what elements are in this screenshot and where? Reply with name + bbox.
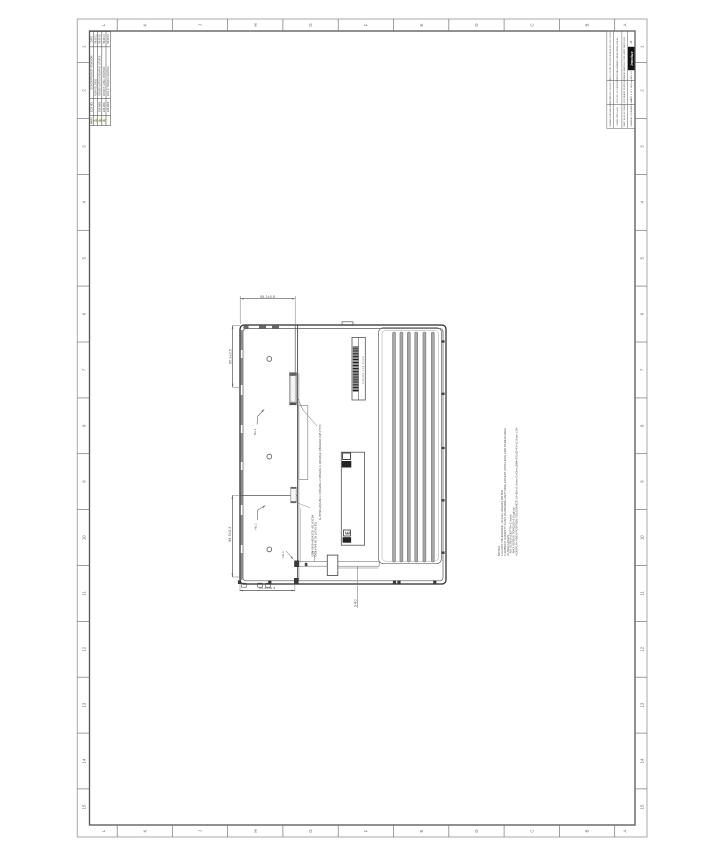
svg-text:G-35599-#(QUAD or DB##AG or DB: G-35599-#(QUAD or DB##AG or DB##A# or QD…	[318, 424, 322, 520]
svg-text:K: K	[142, 829, 147, 832]
svg-text:J: J	[198, 830, 203, 832]
svg-text:REV 3.2: REV 3.2	[631, 70, 633, 79]
svg-text:10: 10	[639, 535, 644, 540]
svg-text:G104X1-L01 3C2A: G104X1-L01 3C2A	[361, 356, 365, 384]
svg-text:F: F	[364, 829, 369, 832]
svg-text:DOCUMENT VERSION 3.2: DOCUMENT VERSION 3.2	[624, 76, 626, 102]
svg-text:K: K	[142, 23, 147, 26]
svg-text:'09.09.14: '09.09.14	[103, 34, 106, 44]
svg-text:ADD IF TORQUE REMARK: ADD IF TORQUE REMARK	[107, 66, 110, 96]
svg-text:88.5±0.5: 88.5±0.5	[228, 526, 232, 541]
svg-text:55.1±0.5: 55.1±0.5	[260, 295, 275, 299]
svg-text:G: G	[308, 829, 313, 833]
svg-text:CHIMEI INNOLUX CORP. APPD T.W: CHIMEI INNOLUX CORP. APPD T.WU S.LIN	[623, 37, 626, 79]
svg-text:85.9±0.5: 85.9±0.5	[228, 349, 232, 364]
svg-text:14: 14	[639, 758, 644, 763]
svg-text:D: D	[474, 829, 479, 832]
svg-text:E09-0885: E09-0885	[99, 101, 102, 112]
svg-text:DATE: DATE	[91, 36, 94, 43]
svg-text:13: 13	[639, 702, 644, 707]
svg-text:'09.09.02: '09.09.02	[99, 34, 102, 44]
svg-text:G: G	[308, 23, 313, 27]
svg-text:15: 15	[82, 804, 87, 809]
svg-text:SHEET 1 OF 1 UNIT mm: SHEET 1 OF 1 UNIT mm	[631, 79, 633, 103]
svg-text:'09.09.25: '09.09.25	[107, 34, 110, 44]
svg-text:10.4 COLOR TFT/LCD MODULE DOC: 10.4 COLOR TFT/LCD MODULE DOC NO. C104X1	[610, 30, 612, 79]
svg-text:12: 12	[82, 646, 87, 651]
svg-text:No.1: No.1	[254, 523, 258, 530]
svg-text:B: B	[585, 829, 590, 832]
svg-text:DATE '09.09.14 SCALE --: DATE '09.09.14 SCALE --	[623, 102, 626, 126]
svg-text:E09-0923: E09-0923	[107, 101, 110, 112]
svg-text:ECN NO.: ECN NO.	[91, 101, 94, 112]
svg-text:13: 13	[82, 702, 87, 707]
svg-text:F: F	[364, 23, 369, 26]
svg-text:DESCRIPTION OF REVISION: DESCRIPTION OF REVISION	[91, 55, 94, 89]
svg-text:J.CHEN T.WU S.LIN: J.CHEN T.WU S.LIN	[617, 107, 619, 126]
svg-text:REVISE NOTES (REMARK) UPDATE: REVISE NOTES (REMARK) UPDATE	[99, 55, 102, 96]
svg-text:E: E	[419, 829, 424, 832]
svg-text:14: 14	[82, 758, 87, 763]
svg-text:NEW RELEASE: NEW RELEASE	[94, 78, 97, 96]
svg-text:DRAWN CHECKED APPD: DRAWN CHECKED APPD	[609, 101, 612, 126]
svg-text:MODIFY LABEL POSITION: MODIFY LABEL POSITION	[103, 66, 106, 96]
svg-text:'09.08.21: '09.08.21	[94, 34, 97, 44]
svg-text:OUTLINE DRAWING (REAR VIEW) S: OUTLINE DRAWING (REAR VIEW) SIZE A4	[616, 37, 619, 79]
svg-text:E: E	[419, 23, 424, 26]
svg-text:H: H	[253, 829, 258, 832]
svg-text:12: 12	[639, 646, 644, 651]
svg-text:DC.L#T#9-B1 (B.L#T#9-B1): DC.L#T#9-B1 (B.L#T#9-B1)	[314, 522, 318, 557]
svg-text:3.80: 3.80	[353, 599, 357, 607]
svg-text:E09-0901: E09-0901	[103, 101, 106, 112]
svg-text:Innolux: Innolux	[629, 51, 634, 66]
svg-text:B: B	[585, 23, 590, 26]
svg-text:D: D	[474, 23, 479, 26]
svg-text:C: C	[529, 23, 534, 26]
svg-text:No.1: No.1	[281, 551, 285, 558]
svg-text:A: A	[623, 23, 628, 26]
svg-text:J: J	[198, 24, 203, 26]
svg-text:11: 11	[82, 591, 87, 596]
svg-text:A: A	[623, 829, 628, 832]
svg-text:11: 11	[639, 591, 644, 596]
svg-text:C: C	[529, 829, 534, 832]
svg-text:No.1: No.1	[253, 428, 257, 435]
svg-text:MODEL NO. G104X1-L01: MODEL NO. G104X1-L01	[610, 78, 612, 103]
svg-text:DOC.NO. 35-C1040-DWG: DOC.NO. 35-C1040-DWG	[617, 78, 619, 103]
svg-text:MARK: MARK	[91, 117, 94, 125]
svg-text:H: H	[253, 23, 258, 26]
svg-text:10: 10	[82, 535, 87, 540]
svg-text:4.DISPLAY AREA POSITION TOLERA: 4.DISPLAY AREA POSITION TOLERANCE: (A=B)…	[514, 427, 518, 556]
svg-text:15: 15	[639, 804, 644, 809]
svg-text:54.35±0.5: 54.35±0.5	[259, 586, 275, 590]
